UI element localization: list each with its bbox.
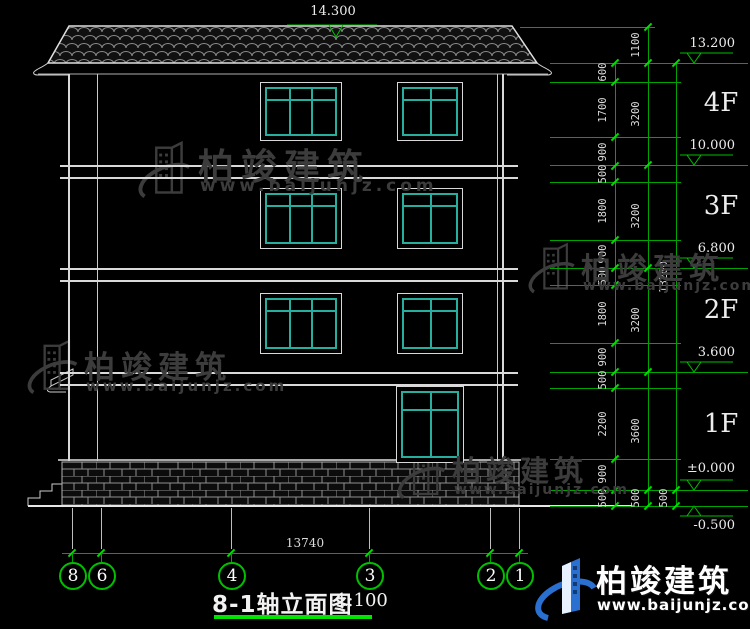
- bottom-dim-line: [62, 553, 528, 554]
- dim-label: 1800: [597, 189, 611, 233]
- axis-ext-line: [72, 508, 73, 549]
- dim-label: 500: [597, 358, 611, 402]
- watermark-url: www.baijunjz.com: [200, 176, 438, 196]
- axis-bubble-2: 2: [477, 562, 505, 590]
- axis-leader: [101, 553, 102, 562]
- roof-eave-right: [507, 63, 551, 75]
- dim-label: 1800: [597, 292, 611, 336]
- brand-logo-url: www.baijunjz.com: [597, 596, 750, 614]
- axis-bubble-1: 1: [506, 562, 534, 590]
- watermark-url: www.baijunjz.com: [583, 278, 750, 294]
- drawing-title: 8-1轴立面图: [212, 585, 353, 619]
- axis-ext-line: [369, 508, 370, 549]
- ridge-elevation-value: 14.300: [293, 4, 373, 19]
- axis-bubble-8: 8: [59, 562, 87, 590]
- roof-eave-left: [34, 63, 70, 75]
- axis-ext-line: [490, 508, 491, 549]
- drawing-scale: 1:100: [336, 590, 388, 611]
- dim-label: 1700: [597, 88, 611, 132]
- floor-band: [60, 280, 518, 282]
- elevation-value: ±0.000: [655, 461, 735, 476]
- total-width-dim: 13740: [265, 536, 345, 550]
- elevation-value: 10.000: [655, 138, 735, 153]
- window-4f-right: [397, 82, 463, 141]
- dim-label: 3200: [630, 194, 644, 238]
- window-4f-left: [260, 82, 342, 141]
- axis-leader: [490, 553, 491, 562]
- window-2f-right: [397, 293, 463, 354]
- elevation-value: -0.500: [655, 518, 735, 533]
- floor-label-4f: 4F: [697, 88, 745, 118]
- axis-leader: [519, 553, 520, 562]
- dim-label: 2200: [597, 402, 611, 446]
- roof-tile-band: [34, 26, 552, 75]
- dim-label: 500: [658, 476, 672, 520]
- entry-steps: [28, 484, 64, 506]
- dim-label: 3600: [630, 409, 644, 453]
- brand-logo-icon: [538, 558, 594, 618]
- axis-bubble-3: 3: [356, 562, 384, 590]
- floor-band: [60, 268, 518, 270]
- axis-leader: [369, 553, 370, 562]
- floor-label-2f: 2F: [697, 295, 745, 325]
- axis-ext-line: [101, 508, 102, 549]
- axis-leader: [231, 553, 232, 562]
- floor-label-3f: 3F: [697, 191, 745, 221]
- dim-label: 3200: [630, 298, 644, 342]
- axis-ext-line: [519, 508, 520, 549]
- window-2f-left: [260, 293, 342, 354]
- window-3f-left: [260, 188, 342, 249]
- axis-bubble-6: 6: [88, 562, 116, 590]
- elevation-value: 3.600: [655, 345, 735, 360]
- dim-label: 500: [630, 476, 644, 520]
- watermark-logo-icon: [140, 143, 189, 197]
- dim-label: 1100: [630, 23, 644, 67]
- window-3f-right: [397, 188, 463, 249]
- axis-ext-line: [231, 508, 232, 549]
- title-underline: [214, 615, 372, 619]
- watermark-url: www.baijunjz.com: [454, 482, 629, 498]
- dim-label: 3200: [630, 92, 644, 136]
- cad-canvas: 600 1700 900 500 1800 900 500 1800 900 5…: [0, 0, 750, 629]
- watermark-url: www.baijunjz.com: [86, 377, 287, 395]
- elevation-value: 13.200: [655, 36, 735, 51]
- axis-leader: [72, 553, 73, 562]
- floor-label-1f: 1F: [697, 409, 745, 439]
- brand-logo-name: 柏竣建筑: [596, 556, 732, 601]
